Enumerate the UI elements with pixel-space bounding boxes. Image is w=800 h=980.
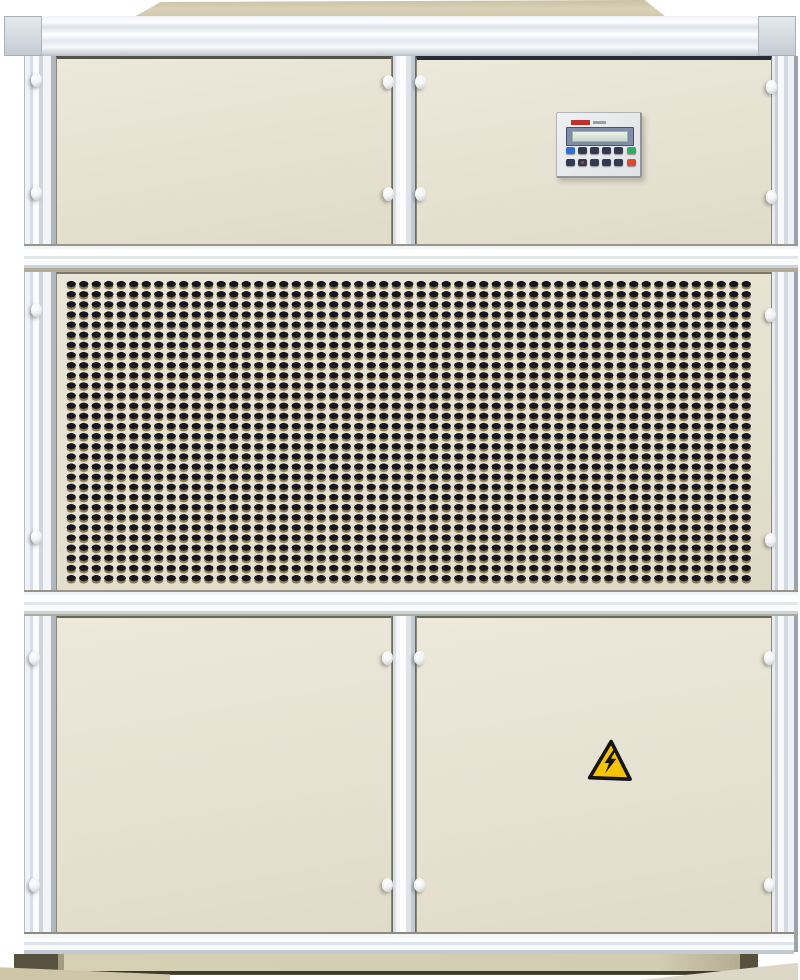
lcd-screen (572, 131, 628, 142)
frame-mid-rail-upper (24, 244, 798, 272)
base-plinth (58, 954, 740, 974)
panel-fastener (382, 878, 393, 892)
keypad-row-1 (566, 147, 638, 155)
frame-top-rail (4, 16, 796, 56)
panel-fastener (383, 187, 394, 201)
panel-fastener (764, 878, 775, 892)
keypad-row-2 (566, 159, 638, 167)
controller-unit (556, 112, 642, 178)
upper-left-access-panel (56, 56, 392, 244)
controller-brand-subtext (593, 121, 606, 124)
panel-fastener (765, 308, 776, 322)
ventilation-grille-panel (56, 272, 772, 590)
keypad-button-navy (602, 159, 611, 166)
lcd-display-bezel (566, 127, 634, 146)
controller-brand-logo (571, 120, 590, 125)
panel-fastener (414, 878, 425, 892)
panel-fastener (31, 186, 42, 200)
keypad-button-green (627, 147, 636, 154)
keypad-button-navy (578, 147, 587, 154)
keypad-button-red-indicator (581, 161, 584, 164)
keypad-button-navy (614, 159, 623, 166)
keypad-button-red (627, 159, 636, 166)
panel-fastener (764, 651, 775, 665)
panel-fastener (31, 530, 42, 544)
keypad-button-navy (590, 147, 599, 154)
keypad-button-navy (590, 159, 599, 166)
panel-fastener (766, 80, 777, 94)
keypad-button-navy (602, 147, 611, 154)
panel-fastener (31, 73, 42, 87)
panel-fastener (765, 533, 776, 547)
frame-center-divider-upper (392, 56, 416, 244)
panel-fastener (766, 190, 777, 204)
keypad-button-navy (614, 147, 623, 154)
high-voltage-warning-icon (587, 732, 634, 788)
frame-center-divider-lower (392, 616, 416, 932)
panel-fastener (382, 651, 393, 665)
lower-left-access-panel (56, 616, 392, 932)
panel-fastener (31, 303, 42, 317)
panel-fastener (414, 651, 425, 665)
keypad-button-navy (566, 159, 575, 166)
photo-background (0, 0, 800, 980)
cabinet-top-lid (134, 0, 666, 17)
keypad-button-blue (566, 147, 575, 154)
panel-fastener (29, 878, 40, 892)
keypad-button-navy-reddot (578, 159, 587, 166)
frame-corner-cap-right (758, 16, 796, 56)
hvac-cabinet-unit (0, 0, 800, 980)
grille-perforations (65, 280, 753, 584)
panel-fastener (415, 75, 426, 89)
panel-fastener (415, 187, 426, 201)
frame-bottom-rail (24, 932, 794, 954)
panel-fastener (383, 75, 394, 89)
frame-corner-cap-left (4, 16, 42, 56)
frame-mid-rail-lower (24, 590, 798, 616)
panel-fastener (29, 651, 40, 665)
